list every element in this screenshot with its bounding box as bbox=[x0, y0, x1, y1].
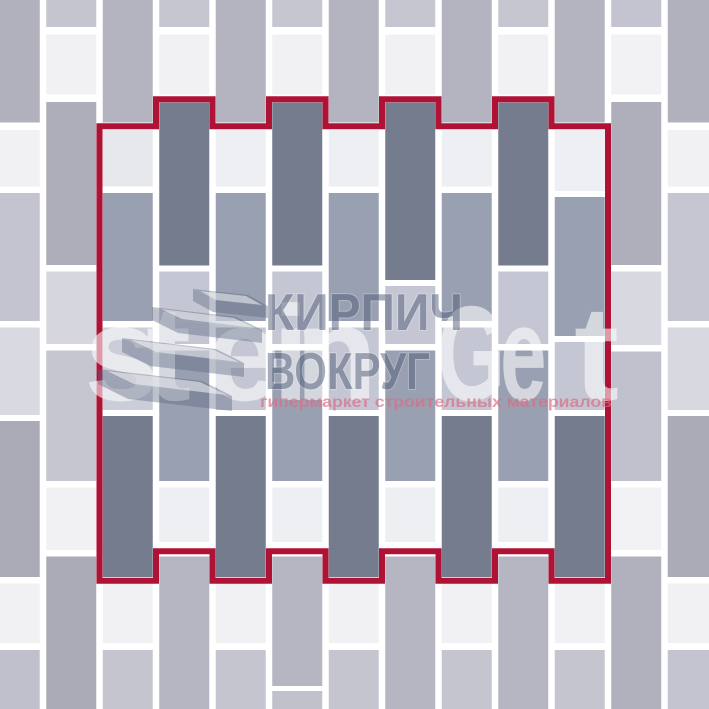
svg-text:гипермаркет строительных матер: гипермаркет строительных материалов bbox=[260, 394, 612, 411]
svg-text:КИРПИЧ: КИРПИЧ bbox=[265, 284, 463, 342]
svg-text:ВОКРУГ: ВОКРУГ bbox=[265, 343, 430, 401]
